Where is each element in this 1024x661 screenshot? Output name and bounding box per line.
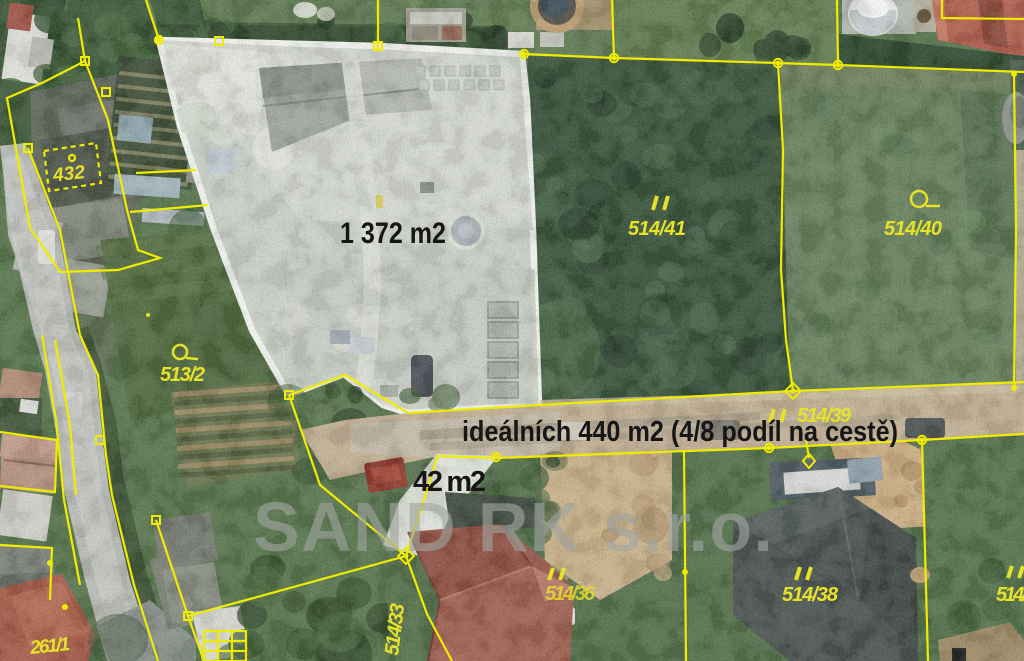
svg-text:42 m2: 42 m2 <box>413 466 486 498</box>
svg-text:ideálních 440 m2 (4/8 podíl na: ideálních 440 m2 (4/8 podíl na cestě) <box>462 416 898 448</box>
svg-text:514/38: 514/38 <box>782 584 839 606</box>
svg-text:SAND RK s.r.o.: SAND RK s.r.o. <box>253 488 773 566</box>
svg-text:514/36: 514/36 <box>545 583 596 605</box>
svg-text:513/2: 513/2 <box>160 364 205 386</box>
svg-text:1 372 m2: 1 372 m2 <box>340 217 446 250</box>
svg-text:514/40: 514/40 <box>884 218 942 240</box>
svg-text:514/3: 514/3 <box>996 584 1024 606</box>
svg-text:261/1: 261/1 <box>28 634 71 659</box>
svg-text:432: 432 <box>51 162 86 186</box>
svg-text:514/41: 514/41 <box>628 218 686 240</box>
